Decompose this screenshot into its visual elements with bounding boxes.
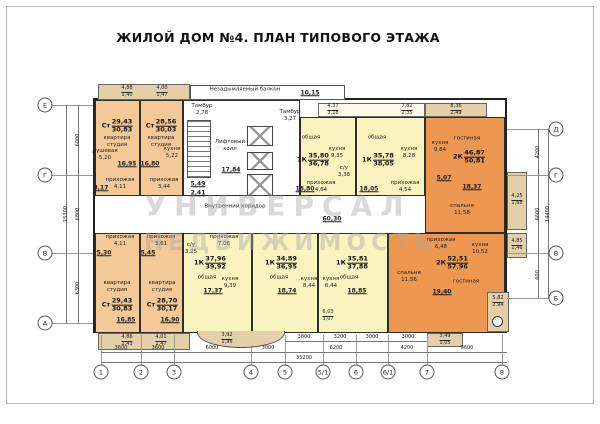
- dim-row2-1: 3600: [152, 345, 165, 351]
- apt-b6-type: 2К: [436, 259, 446, 267]
- balcony-bay-reduced: 1,96: [221, 340, 232, 346]
- axis-right-D: Д: [549, 122, 564, 137]
- apt-b4-main-area: 18,74: [278, 287, 297, 295]
- apt-t2-main-area: 16,80: [141, 160, 160, 168]
- apt-t1-room2: прихожая 4,11: [106, 177, 135, 191]
- apt-b3-head: 1К 37,9639,92: [194, 256, 226, 271]
- elevator-shaft-2: [247, 152, 273, 170]
- apt-t1-room3: 3,17: [94, 184, 109, 192]
- dim-right-2: 600: [535, 270, 541, 280]
- balcony-tm2-area: 7,822,35: [401, 104, 412, 116]
- balcony-br-area: 3,491,05: [439, 334, 450, 346]
- apt-t3-room1: кухня 9,35: [329, 146, 346, 160]
- balcony-tl2-area: 4,001,47: [156, 86, 167, 98]
- tambour-1-label: Тамбур 2,78: [191, 103, 212, 117]
- apt-t5-type: 2К: [453, 153, 463, 161]
- axis-bottom-5: 5: [278, 365, 293, 380]
- smoke-free-balcony-label: Незадымляемый балкон: [210, 87, 281, 94]
- axis-line: [502, 335, 503, 365]
- apt-t3-type: 1К: [297, 156, 307, 164]
- axis-line: [285, 335, 286, 365]
- balcony-r2-area: 4,851,46: [511, 239, 522, 251]
- apt-b5-main-area: 18,85: [348, 287, 367, 295]
- apt-b2-type: Ст: [147, 301, 156, 309]
- axis-line: [507, 298, 549, 299]
- dimension-line: [101, 362, 507, 363]
- dim-row1-1: 3200: [334, 334, 347, 340]
- axis-right-G: Г: [549, 168, 564, 183]
- dim-row2-2: 6000: [206, 345, 219, 351]
- watermark-line2: НЕДВИЖИМОСТЬ: [144, 230, 436, 256]
- apt-t3-room3: с/у 3,38: [338, 165, 350, 179]
- apt-t2-room1: кухня 5,22: [164, 146, 181, 160]
- dim-left-1: 6800: [75, 208, 81, 221]
- apt-t4-area-total: 38,05: [373, 161, 394, 168]
- dim-left-0: 6000: [75, 134, 81, 147]
- dim-right-1: 6600: [535, 208, 541, 221]
- apt-b4-head: 1К 34,8936,95: [265, 256, 297, 271]
- apt-t2-type: Ст: [146, 122, 155, 130]
- apt-t5-name: гостиная: [454, 136, 480, 143]
- axis-line: [507, 175, 549, 176]
- dim-row2-0: 3600: [115, 345, 128, 351]
- axis-line: [52, 253, 93, 254]
- apt-b6-room2: спальня 11,56: [397, 270, 421, 284]
- apt-t4-head: 1К 35,7838,05: [362, 153, 394, 168]
- axis-left-A: А: [38, 316, 53, 331]
- apt-b5-name: общая: [340, 275, 359, 282]
- column-symbol: [492, 316, 503, 327]
- axis-line: [52, 105, 93, 106]
- balcony-r2-reduced: 1,46: [511, 246, 522, 252]
- balcony-top-left: [98, 84, 190, 100]
- dimension-line: [101, 352, 507, 353]
- page-title: ЖИЛОЙ ДОМ №4. ПЛАН ТИПОВОГО ЭТАЖА: [0, 30, 556, 45]
- dim-row1-3: 3000: [402, 334, 415, 340]
- apt-b1-type: Ст: [102, 301, 111, 309]
- apt-b6-head: 2К 52,5157,96: [436, 256, 468, 271]
- axis-left-E: Е: [38, 98, 53, 113]
- apt-b3-room1: кухня 9,39: [222, 276, 239, 290]
- axis-left-G: Г: [38, 168, 53, 183]
- apt-t5-room3: 5,07: [437, 174, 452, 182]
- dim-total: 35200: [296, 355, 312, 361]
- balcony-tm1-area: 4,373,18: [327, 104, 338, 116]
- apt-b2-area-total: 30,17: [157, 306, 178, 313]
- dim-left-2: 6300: [75, 282, 81, 295]
- stairs-area: 5,49: [191, 180, 206, 188]
- apt-b2-head: Ст 28,7030,17: [147, 298, 178, 313]
- balcony-r1-area: 4,251,68: [511, 194, 522, 206]
- axis-bottom-6-1: 6/1: [381, 365, 396, 380]
- apt-t4-name: общая: [368, 135, 387, 142]
- axis-bottom-6: 6: [349, 365, 364, 380]
- apt-t1-head: Ст 29,4330,83: [102, 119, 133, 134]
- axis-bottom-8: 8: [495, 365, 510, 380]
- axis-bottom-7: 7: [420, 365, 435, 380]
- axis-left-V: В: [38, 246, 53, 261]
- apt-b4-type: 1К: [265, 259, 275, 267]
- apt-t3-area-total: 36,78: [308, 161, 329, 168]
- axis-line: [427, 335, 428, 365]
- apt-t2-area-total: 30,03: [156, 127, 177, 134]
- apt-b5-area-total: 37,88: [347, 264, 368, 271]
- apt-t3-name: общая: [302, 135, 321, 142]
- dim-row1-0: 3800: [298, 334, 311, 340]
- apt-b6-room1: кухня 10,52: [472, 242, 489, 256]
- axis-bottom-2: 2: [134, 365, 149, 380]
- apt-b2-main-area: 16,90: [161, 316, 180, 324]
- apt-t5-main-area: 18,37: [463, 183, 482, 191]
- balcony-bottom-left: [98, 333, 190, 350]
- apt-b4-room1: кухня 8,44: [301, 276, 318, 290]
- axis-line: [174, 335, 175, 365]
- axis-line: [507, 129, 549, 130]
- smoke-free-balcony-area: 10,15: [301, 89, 320, 97]
- apt-t1-type: Ст: [102, 122, 111, 130]
- apt-b5-room1: кухня 6,44: [323, 276, 340, 290]
- apt-b1-room2: 5,30: [97, 249, 112, 257]
- dim-row2-4: 6200: [330, 345, 343, 351]
- axis-bottom-3: 3: [167, 365, 182, 380]
- axis-right-B: Б: [549, 291, 564, 306]
- axis-line: [323, 335, 324, 365]
- apt-b6-name: гостиная: [453, 279, 479, 286]
- apt-t4-room1: кухня 8,28: [401, 146, 418, 160]
- apt-b3-name: общая: [198, 275, 217, 282]
- apt-t4-type: 1К: [362, 156, 372, 164]
- axis-bottom-4: 4: [244, 365, 259, 380]
- apt-t5-head: 2К 46,8750,81: [453, 150, 485, 165]
- balcony-tm2-reduced: 2,35: [401, 111, 412, 117]
- dim-left-total: 15300: [63, 206, 69, 222]
- axis-line: [52, 175, 93, 176]
- axis-right-V: В: [549, 246, 564, 261]
- balcony-b5l-reduced: 3,07: [322, 317, 333, 323]
- balcony-corner-reduced: 2,94: [492, 303, 503, 309]
- apt-b2-name: квартира студия: [148, 280, 175, 294]
- balcony-tr-area: 8,362,49: [450, 104, 461, 116]
- axis-line: [141, 335, 142, 365]
- dim-row2-5: 4200: [401, 345, 414, 351]
- dim-row2-3: 3000: [262, 345, 275, 351]
- axis-line: [101, 335, 102, 365]
- dim-right-0: 4200: [535, 146, 541, 159]
- apt-t1-room1: душевая 5,20: [92, 148, 117, 162]
- dimension-line: [285, 341, 427, 342]
- axis-line: [356, 335, 357, 365]
- lift-hall-label: Лифтовый холл: [215, 139, 245, 153]
- apt-t5-room1: кухня 9,84: [432, 140, 449, 154]
- balcony-tl1-reduced: 1,40: [121, 93, 132, 99]
- apt-b6-main-area: 19,40: [433, 288, 452, 296]
- balcony-bay-area: 3,921,96: [221, 333, 232, 345]
- balcony-tm1-reduced: 3,18: [327, 111, 338, 117]
- axis-line: [52, 323, 93, 324]
- balcony-corner-area: 5,822,94: [492, 296, 503, 308]
- balcony-tr-reduced: 2,49: [450, 111, 461, 117]
- dim-row2-6: 9600: [461, 345, 474, 351]
- dim-row1-2: 3000: [366, 334, 379, 340]
- apt-t2-head: Ст 28,5630,03: [146, 119, 177, 134]
- balcony-tl1-area: 4,881,40: [121, 86, 132, 98]
- apt-b4-name: общая: [270, 275, 289, 282]
- dim-right-total: 14400: [545, 206, 551, 222]
- apt-b5-head: 1К 35,8137,88: [336, 256, 368, 271]
- apt-b1-room1: прихожая 4,11: [106, 234, 135, 248]
- apt-b3-main-area: 17,37: [204, 287, 223, 295]
- apt-b1-head: Ст 29,4330,83: [102, 298, 133, 313]
- apt-b4-area-total: 36,95: [276, 264, 297, 271]
- lift-hall-area: 17,84: [222, 166, 241, 174]
- apt-b1-area-total: 30,83: [112, 306, 133, 313]
- apt-b1-main-area: 16,85: [117, 316, 136, 324]
- apt-t3-head: 1К 35,8036,78: [297, 153, 329, 168]
- watermark-line1: УНИВЕРСАЛ: [145, 190, 412, 223]
- axis-line: [388, 335, 389, 365]
- balcony-br-reduced: 1,05: [439, 341, 450, 347]
- elevator-shaft-1: [247, 126, 273, 146]
- apt-b3-type: 1К: [194, 259, 204, 267]
- apt-t1-name: квартира студия: [103, 135, 130, 149]
- apt-t1-main-area: 16,95: [118, 160, 137, 168]
- apt-b3-area-total: 39,92: [205, 264, 226, 271]
- axis-line: [507, 253, 549, 254]
- apt-b5-type: 1К: [336, 259, 346, 267]
- apt-t1-area-total: 30,83: [112, 127, 133, 134]
- apt-t5-area-total: 50,81: [464, 158, 485, 165]
- tambour-2-label: Тамбур 3,27: [279, 109, 300, 123]
- apt-t5-room2: спальня 11,58: [450, 203, 474, 217]
- balcony-r1-reduced: 1,68: [511, 201, 522, 207]
- apt-b1-name: квартира студия: [103, 280, 130, 294]
- balcony-b5l-area: 6,033,07: [322, 310, 333, 322]
- axis-bottom-1: 1: [94, 365, 109, 380]
- staircase: [187, 120, 211, 178]
- balcony-tl2-reduced: 1,47: [156, 93, 167, 99]
- axis-bottom-5-1: 5/1: [316, 365, 331, 380]
- apt-b6-area-total: 57,96: [447, 264, 468, 271]
